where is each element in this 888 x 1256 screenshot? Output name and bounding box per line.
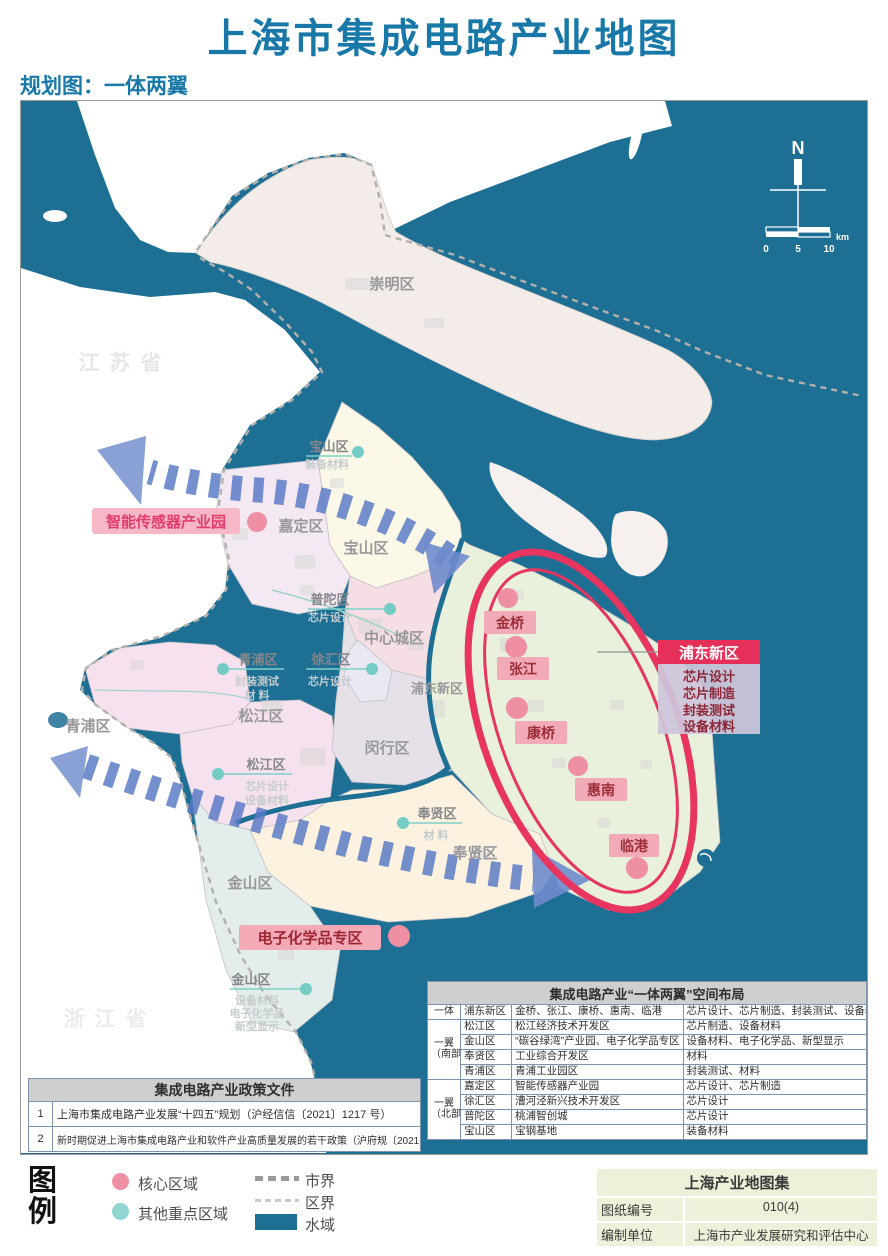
- sheet-number-value: 010(4): [685, 1198, 877, 1221]
- dishui-lake: [697, 849, 715, 867]
- group-cell: 一翼（北部）: [428, 1080, 461, 1140]
- secondary-site-dot-jinshan: [300, 983, 312, 995]
- secondary-site-dot-qingpu: [217, 663, 229, 675]
- site-label-songjiang: 松江区: [246, 757, 285, 772]
- parks-cell: 松江经济技术开发区: [512, 1020, 683, 1035]
- group-line2: （南部）: [431, 1050, 457, 1061]
- policy-table: 集成电路产业政策文件 1 上海市集成电路产业发展“十四五”规划（沪经信信〔202…: [28, 1078, 421, 1152]
- core-site-dot-jiading: [247, 512, 267, 532]
- site-label-putuo: 普陀区: [310, 592, 349, 607]
- core-site-label-jinqiao: 金桥: [495, 615, 525, 631]
- secondary-site-dot-songjiang: [212, 768, 224, 780]
- site-industries-xuhui: 芯片设计: [308, 674, 352, 688]
- info-row: 图纸编号 010(4): [597, 1198, 877, 1223]
- legend-core-dot: [112, 1173, 129, 1190]
- district-cell: 宝山区: [461, 1125, 512, 1140]
- industries-cell: 装备材料: [683, 1125, 866, 1140]
- district-cell: 普陀区: [461, 1110, 512, 1125]
- legend-water-swatch: [255, 1214, 297, 1230]
- atlas-title: 上海产业地图集: [597, 1169, 877, 1198]
- core-site-dot-zhangjiang: [505, 636, 527, 658]
- e-chem-zone-label: 电子化学品专区: [257, 929, 362, 947]
- spatial-layout-table: 集成电路产业“一体两翼”空间布局 一体 浦东新区 金桥、张江、康桥、惠南、临港 …: [427, 981, 867, 1140]
- table-row: 奉贤区 工业综合开发区 材料: [428, 1050, 867, 1065]
- pudong-industry-1: 芯片设计: [683, 669, 735, 684]
- publisher-label: 编制单位: [597, 1223, 685, 1246]
- legend-district-border-swatch: [255, 1199, 299, 1202]
- industries-cell: 芯片设计: [683, 1095, 866, 1110]
- table-row: 金山区 “碳谷绿湾”产业园、电子化学品专区 设备材料、电子化学品、新型显示: [428, 1035, 867, 1050]
- district-cell: 徐汇区: [461, 1095, 512, 1110]
- site-industries-putuo: 芯片设计: [308, 610, 352, 624]
- district-cell: 金山区: [461, 1035, 512, 1050]
- group-cell: 一翼（南部）: [428, 1020, 461, 1080]
- pudong-industry-4: 设备材料: [683, 719, 735, 734]
- policy-table-title: 集成电路产业政策文件: [29, 1079, 421, 1102]
- group-line1: 一翼: [431, 1099, 457, 1110]
- scale-tick-10: 10: [823, 244, 835, 255]
- small-island: [43, 210, 67, 222]
- site-industries-songjiang-1: 芯片设计: [245, 779, 289, 793]
- legend-core-label: 核心区域: [138, 1173, 198, 1194]
- map-subtitle: 规划图：一体两翼: [20, 70, 188, 100]
- parks-cell: 漕河泾新兴技术开发区: [512, 1095, 683, 1110]
- table-row: 一翼（南部） 松江区 松江经济技术开发区 芯片制造、设备材料: [428, 1020, 867, 1035]
- table-row: 普陀区 桃浦智创城 芯片设计: [428, 1110, 867, 1125]
- pudong-industry-3: 封装测试: [683, 703, 735, 718]
- district-label-jinshan: 金山区: [226, 874, 272, 892]
- core-site-dot-huinan: [568, 756, 588, 776]
- district-label-central-city: 中心城区: [364, 629, 424, 647]
- policy-text: 上海市集成电路产业发展“十四五”规划（沪经信信〔2021〕1217 号）: [53, 1102, 421, 1127]
- site-industries-qingpu-2: 材 料: [244, 688, 269, 702]
- group-line2: （北部）: [431, 1110, 457, 1121]
- scale-tick-0: 0: [763, 244, 769, 255]
- table-row: 1 上海市集成电路产业发展“十四五”规划（沪经信信〔2021〕1217 号）: [29, 1102, 421, 1127]
- group-line1: 一翼: [431, 1039, 457, 1050]
- site-industries-jinshan-1: 设备材料: [235, 993, 279, 1007]
- industries-cell: 芯片制造、设备材料: [683, 1020, 866, 1035]
- pudong-industry-2: 芯片制造: [683, 686, 736, 701]
- atlas-info-box: 上海产业地图集 图纸编号 010(4) 编制单位 上海市产业发展研究和评估中心: [597, 1169, 877, 1246]
- legend-city-border-label: 市界: [305, 1170, 335, 1191]
- site-label-xuhui: 徐汇区: [310, 652, 350, 667]
- district-label-chongming: 崇明区: [369, 275, 414, 293]
- layout-table-title: 集成电路产业“一体两翼”空间布局: [428, 982, 867, 1005]
- legend-title-char2: 例: [28, 1197, 57, 1228]
- legend-title: 图 例: [28, 1166, 57, 1228]
- site-label-jinshan: 金山区: [230, 972, 270, 987]
- core-site-label-lingang: 临港: [620, 838, 649, 854]
- site-industries-jinshan-3: 新型显示: [235, 1019, 279, 1033]
- page-title: 上海市集成电路产业地图: [0, 6, 888, 64]
- group-cell: 一体: [428, 1005, 461, 1020]
- parks-cell: 宝钢基地: [512, 1125, 683, 1140]
- district-label-baoshan: 宝山区: [343, 539, 388, 557]
- district-label-fengxian: 奉贤区: [451, 844, 497, 862]
- parks-cell: 智能传感器产业园: [512, 1080, 683, 1095]
- district-label-songjiang: 松江区: [238, 707, 283, 725]
- industries-cell: 封装测试、材料: [683, 1065, 866, 1080]
- province-label-jiangsu: 江苏省: [79, 352, 172, 375]
- parks-cell: “碳谷绿湾”产业园、电子化学品专区: [512, 1035, 683, 1050]
- site-industries-jinshan-2: 电子化学品: [230, 1006, 285, 1020]
- industries-cell: 芯片设计、芯片制造、封装测试、设备材料: [683, 1005, 866, 1020]
- district-cell: 浦东新区: [461, 1005, 512, 1020]
- parks-cell: 桃浦智创城: [512, 1110, 683, 1125]
- policy-no: 2: [29, 1127, 53, 1152]
- site-industries-songjiang-2: 设备材料: [245, 793, 289, 807]
- legend-secondary-dot: [112, 1203, 129, 1220]
- district-cell: 青浦区: [461, 1065, 512, 1080]
- table-row: 青浦区 青浦工业园区 封装测试、材料: [428, 1065, 867, 1080]
- policy-text: 新时期促进上海市集成电路产业和软件产业高质量发展的若干政策（沪府规〔2021〕1…: [53, 1127, 421, 1152]
- core-site-label-zhangjiang: 张江: [509, 661, 537, 677]
- table-row: 一体 浦东新区 金桥、张江、康桥、惠南、临港 芯片设计、芯片制造、封装测试、设备…: [428, 1005, 867, 1020]
- core-site-label-huinan: 惠南: [587, 782, 615, 798]
- site-label-baoshan: 宝山区: [309, 439, 348, 454]
- policy-no: 1: [29, 1102, 53, 1127]
- legend-water-label: 水域: [305, 1214, 335, 1235]
- core-site-dot-lingang: [626, 857, 648, 879]
- core-site-dot-jinqiao: [498, 588, 518, 608]
- parks-cell: 金桥、张江、康桥、惠南、临港: [512, 1005, 683, 1020]
- info-row: 编制单位 上海市产业发展研究和评估中心: [597, 1223, 877, 1246]
- district-label-qingpu: 青浦区: [65, 717, 110, 735]
- district-cell: 奉贤区: [461, 1050, 512, 1065]
- district-label-minhang: 闵行区: [364, 739, 409, 757]
- district-label-pudong: 浦东新区: [411, 681, 463, 696]
- site-industries-qingpu-1: 封装测试: [235, 674, 279, 688]
- core-site-dot-jinshan-coast: [388, 925, 410, 947]
- district-cell: 松江区: [461, 1020, 512, 1035]
- parks-cell: 青浦工业园区: [512, 1065, 683, 1080]
- core-site-dot-kangqiao: [506, 697, 528, 719]
- core-site-label-kangqiao: 康桥: [527, 725, 556, 741]
- legend-district-border-label: 区界: [305, 1192, 335, 1213]
- industries-cell: 材料: [683, 1050, 866, 1065]
- site-industries-baoshan: 装备材料: [304, 457, 349, 471]
- table-row: 宝山区 宝钢基地 装备材料: [428, 1125, 867, 1140]
- table-row: 徐汇区 漕河泾新兴技术开发区 芯片设计: [428, 1095, 867, 1110]
- site-industries-fengxian: 材 料: [423, 828, 448, 842]
- industries-cell: 芯片设计: [683, 1110, 866, 1125]
- table-row: 一翼（北部） 嘉定区 智能传感器产业园 芯片设计、芯片制造: [428, 1080, 867, 1095]
- scale-unit: km: [836, 232, 849, 242]
- compass-north-label: N: [792, 138, 805, 158]
- site-label-fengxian: 奉贤区: [416, 806, 456, 821]
- district-cell: 嘉定区: [461, 1080, 512, 1095]
- sheet-number-label: 图纸编号: [597, 1198, 685, 1221]
- site-label-qingpu: 青浦区: [238, 652, 277, 667]
- legend-city-border-swatch: [255, 1176, 299, 1181]
- table-row: 2 新时期促进上海市集成电路产业和软件产业高质量发展的若干政策（沪府规〔2021…: [29, 1127, 421, 1152]
- industries-cell: 设备材料、电子化学品、新型显示: [683, 1035, 866, 1050]
- scale-tick-5: 5: [795, 244, 801, 255]
- legend-title-char1: 图: [28, 1166, 57, 1197]
- industries-cell: 芯片设计、芯片制造: [683, 1080, 866, 1095]
- parks-cell: 工业综合开发区: [512, 1050, 683, 1065]
- secondary-site-dot-xuhui: [366, 663, 378, 675]
- district-label-jiading: 嘉定区: [277, 517, 323, 535]
- secondary-site-dot-baoshan: [352, 446, 364, 458]
- legend-secondary-label: 其他重点区域: [138, 1203, 228, 1224]
- province-label-zhejiang: 浙江省: [64, 1008, 157, 1031]
- secondary-site-dot-putuo: [384, 603, 396, 615]
- pudong-callout-title: 浦东新区: [679, 644, 739, 662]
- smart-sensor-zone-label: 智能传感器产业园: [106, 513, 226, 531]
- publisher-value: 上海市产业发展研究和评估中心: [685, 1223, 877, 1246]
- secondary-site-dot-fengxian: [397, 817, 409, 829]
